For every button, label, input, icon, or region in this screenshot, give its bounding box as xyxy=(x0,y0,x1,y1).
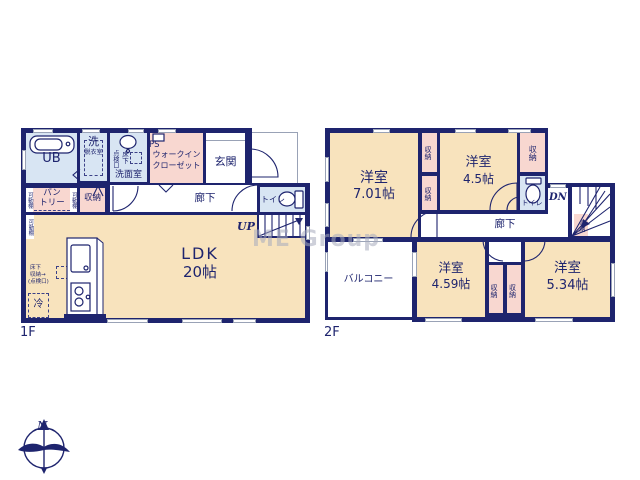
entrance-step-line xyxy=(206,140,245,141)
label-west701: 洋室 xyxy=(330,170,418,186)
label-closet: 収納 xyxy=(577,216,584,236)
label-west701-size: 7.01帖 xyxy=(330,188,418,203)
label-dressing: 脱衣室 xyxy=(80,150,107,157)
porch-outline xyxy=(252,132,298,183)
window xyxy=(325,252,328,272)
label-uf-2: 収納→ xyxy=(30,272,46,278)
label-washroom: 洗面室 xyxy=(108,170,149,180)
label-toilet-1f: トイレ xyxy=(261,195,285,204)
underfloor-storage-box xyxy=(56,266,69,279)
label-west45: 洋室 xyxy=(440,156,517,171)
label-pantry-2: トリー xyxy=(34,199,70,209)
label-uf-1: 床下 xyxy=(30,265,41,271)
window xyxy=(82,129,100,133)
label-toilet-2f: トイレ xyxy=(519,199,545,207)
label-hall-2f: 廊下 xyxy=(480,218,530,230)
label-underfloor: 床下 xyxy=(120,147,127,167)
window xyxy=(611,263,615,297)
inspection-hatch xyxy=(130,152,142,164)
closet-entry xyxy=(489,242,521,262)
pantry-open-edge xyxy=(34,210,70,211)
label-west534: 洋室 xyxy=(525,261,610,277)
label-west459-size: 4.59帖 xyxy=(417,278,485,292)
label-ldk-size: 20帖 xyxy=(130,264,270,281)
label-balcony: バルコニー xyxy=(327,274,410,286)
window xyxy=(325,157,329,182)
window xyxy=(128,129,144,133)
window xyxy=(508,129,531,133)
window xyxy=(550,184,566,188)
label-dn: DN xyxy=(549,192,567,204)
compass-icon: N xyxy=(18,419,70,474)
window xyxy=(158,129,176,133)
label-fridge: 冷 xyxy=(28,299,49,311)
label-inspection: 点検口 xyxy=(111,146,118,172)
label-wic-2: クローゼット xyxy=(150,161,203,170)
window xyxy=(182,319,222,323)
floorplan-canvas: N UB 洗 脱衣室 点検口 床下 洗面室 PS ウォークイン クローゼット 玄… xyxy=(0,0,640,480)
label-ub: UB xyxy=(26,152,77,167)
label-west534-size: 5.34帖 xyxy=(525,279,610,294)
label-closet: 収納 xyxy=(509,276,517,306)
window xyxy=(107,319,148,323)
label-ldk: LDK xyxy=(130,245,270,263)
label-shelf: 可動棚 xyxy=(27,189,33,212)
label-hall-1f: 廊下 xyxy=(180,192,230,204)
label-west459: 洋室 xyxy=(417,261,485,275)
window xyxy=(425,318,462,322)
label-closet: 収納 xyxy=(424,180,432,208)
compass-north-label: N xyxy=(36,419,48,433)
window xyxy=(455,129,476,133)
label-closet: 収納 xyxy=(424,139,432,167)
window xyxy=(373,129,390,133)
label-wic-1: ウォークイン xyxy=(150,150,203,159)
label-closet: 収納 xyxy=(528,138,537,168)
label-west45-size: 4.5帖 xyxy=(440,173,517,187)
window xyxy=(325,203,329,227)
watermark: ME Group xyxy=(252,227,380,252)
label-floor1: 1F xyxy=(20,326,36,341)
window xyxy=(233,319,256,323)
window xyxy=(33,129,53,133)
label-shelf: 可動棚 xyxy=(71,189,77,212)
window xyxy=(535,318,573,322)
label-floor2: 2F xyxy=(324,326,340,341)
label-storage-1f: 収納 xyxy=(80,194,105,204)
label-wash: 洗 xyxy=(80,136,107,149)
label-entrance: 玄関 xyxy=(206,156,245,169)
label-uf-3: (点検口) xyxy=(28,279,49,285)
label-shelf: 可動棚 xyxy=(27,216,33,239)
label-closet: 収納 xyxy=(490,276,498,306)
